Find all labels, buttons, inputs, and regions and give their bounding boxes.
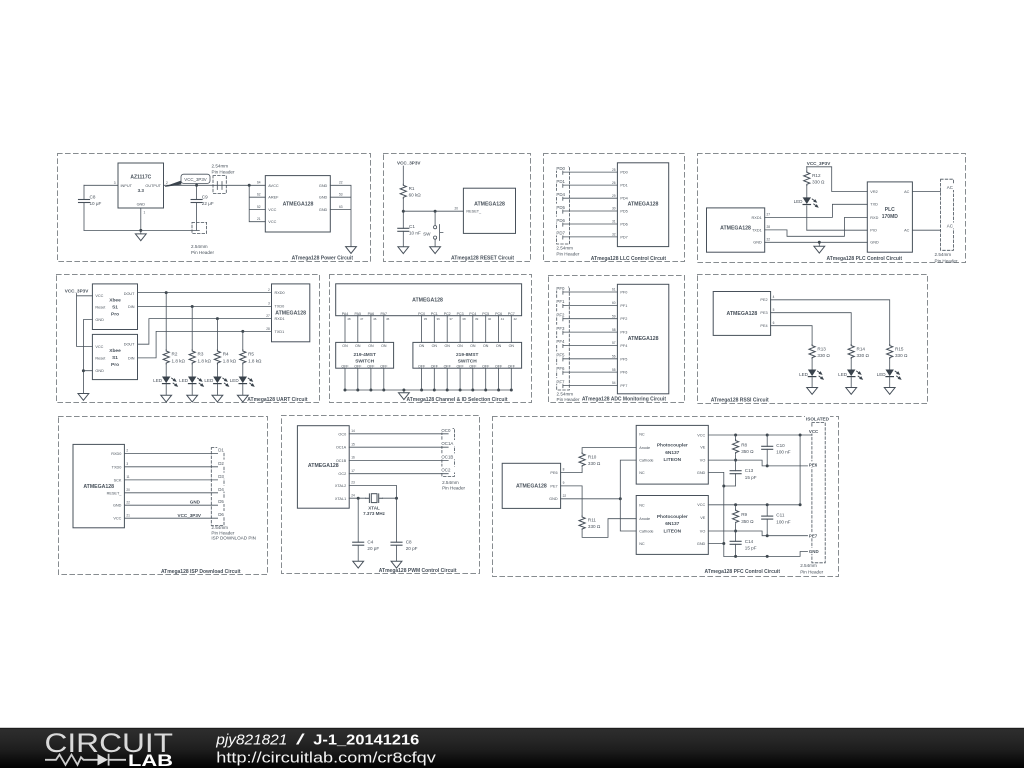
svg-text:DOUT: DOUT (124, 343, 135, 347)
svg-text:TXD1: TXD1 (275, 330, 285, 334)
svg-text:VCC: VCC (268, 208, 276, 212)
svg-text:3: 3 (126, 462, 128, 466)
svg-text:R12: R12 (812, 173, 821, 178)
svg-text:OC1A: OC1A (336, 446, 347, 450)
svg-text:PF0: PF0 (556, 286, 565, 291)
svg-text:OC0: OC0 (441, 428, 451, 433)
svg-text:1.8 kΩ: 1.8 kΩ (248, 358, 262, 363)
svg-text:15 pF: 15 pF (745, 545, 757, 550)
svg-text:Photocoupler: Photocoupler (657, 514, 688, 520)
svg-text:6N137: 6N137 (665, 450, 679, 456)
svg-text:Pro: Pro (111, 362, 119, 368)
svg-text:ISOLATED: ISOLATED (806, 417, 830, 422)
svg-text:PF3: PF3 (620, 331, 627, 335)
svg-text:TXD: TXD (870, 203, 878, 207)
svg-text:Cathode: Cathode (639, 529, 653, 533)
svg-text:LED: LED (799, 372, 809, 377)
svg-text:XTAL1: XTAL1 (335, 497, 346, 501)
svg-text:OFF: OFF (418, 364, 426, 368)
svg-text:ON: ON (470, 344, 476, 348)
svg-text:2.54mm: 2.54mm (212, 164, 229, 169)
svg-text:LED: LED (838, 372, 848, 377)
svg-text:GND: GND (95, 318, 104, 322)
svg-text:Xbee: Xbee (109, 348, 121, 354)
svg-text:64: 64 (257, 181, 261, 185)
svg-text:OFF: OFF (482, 364, 490, 368)
svg-text:R5: R5 (248, 352, 254, 357)
svg-text:RXD: RXD (870, 216, 878, 220)
svg-text:27: 27 (266, 314, 270, 318)
svg-text:Pin Header: Pin Header (556, 252, 579, 257)
svg-text:Pin Header: Pin Header (557, 397, 580, 402)
svg-text:PD1: PD1 (620, 184, 627, 188)
svg-text:11: 11 (126, 475, 130, 479)
svg-text:56: 56 (612, 355, 616, 359)
svg-text:PF5: PF5 (620, 357, 627, 361)
svg-text:R15: R15 (895, 346, 904, 351)
svg-text:R14: R14 (857, 346, 866, 351)
svg-text:ATmega128 ADC Monitoring Circu: ATmega128 ADC Monitoring Circuit (582, 397, 667, 403)
svg-text:VCC_3P3V: VCC_3P3V (65, 289, 89, 294)
svg-text:D2: D2 (218, 461, 224, 466)
svg-text:LED: LED (794, 199, 804, 204)
svg-text:ATMEGA128: ATMEGA128 (283, 202, 314, 208)
svg-text:OFF: OFF (341, 364, 349, 368)
svg-text:OFF: OFF (380, 364, 388, 368)
svg-text:RXD0: RXD0 (275, 291, 285, 295)
svg-text:36: 36 (437, 317, 441, 321)
svg-text:GND: GND (137, 203, 146, 207)
svg-text:20 pF: 20 pF (406, 546, 418, 551)
svg-text:D3: D3 (218, 474, 224, 479)
svg-text:41: 41 (501, 317, 505, 321)
svg-text:AC: AC (904, 190, 910, 194)
svg-text:21: 21 (257, 217, 261, 221)
svg-text:PA4: PA4 (342, 312, 349, 316)
svg-text:C10: C10 (776, 443, 785, 448)
svg-text:ON: ON (355, 344, 361, 348)
svg-text:VCC: VCC (113, 517, 121, 521)
svg-text:PD7: PD7 (556, 231, 565, 236)
svg-text:28: 28 (767, 225, 771, 229)
svg-text:PA5: PA5 (355, 312, 362, 316)
svg-text:PD5: PD5 (556, 205, 565, 210)
svg-text:GND: GND (319, 208, 328, 212)
svg-text:58: 58 (612, 328, 616, 332)
svg-text:15: 15 (351, 442, 355, 446)
svg-text:LED: LED (877, 372, 887, 377)
svg-text:OFF: OFF (367, 364, 375, 368)
svg-text:Pin Header: Pin Header (212, 169, 235, 174)
svg-text:20: 20 (126, 488, 130, 492)
svg-text:D5: D5 (218, 499, 224, 504)
svg-text:PD4: PD4 (620, 197, 627, 201)
svg-text:PD6: PD6 (620, 223, 627, 227)
svg-text:PE3: PE3 (760, 311, 767, 315)
svg-text:PD0: PD0 (556, 166, 565, 171)
svg-text:GND: GND (697, 471, 706, 475)
svg-text:8: 8 (563, 468, 565, 472)
svg-text:22: 22 (563, 494, 567, 498)
svg-text:Pro: Pro (111, 312, 119, 318)
svg-text:53: 53 (339, 193, 343, 197)
svg-text:OFF: OFF (431, 364, 439, 368)
svg-text:C11: C11 (776, 513, 785, 518)
svg-text:ATMEGA128: ATMEGA128 (727, 311, 758, 317)
svg-text:37: 37 (449, 317, 453, 321)
svg-text:VO: VO (700, 459, 706, 463)
svg-text:63: 63 (339, 205, 343, 209)
svg-text:VCC: VCC (95, 294, 103, 298)
svg-text:ATmega128 Channel & ID Selecti: ATmega128 Channel & ID Selection Circuit (406, 397, 507, 403)
svg-text:OFF: OFF (354, 364, 362, 368)
svg-text:59: 59 (612, 314, 616, 318)
svg-text:46: 46 (373, 317, 377, 321)
svg-text:Pin Header: Pin Header (935, 258, 958, 263)
svg-text:52: 52 (257, 205, 261, 209)
svg-text:OC0: OC0 (338, 432, 346, 436)
svg-text:OC2: OC2 (338, 472, 346, 476)
svg-text:ATmega128 UART Circuit: ATmega128 UART Circuit (247, 397, 308, 403)
svg-text:VR2: VR2 (870, 190, 877, 194)
svg-text:ATMEGA128: ATMEGA128 (628, 336, 659, 342)
svg-text:55: 55 (612, 368, 616, 372)
svg-text:9: 9 (563, 481, 565, 485)
svg-text:3.3: 3.3 (138, 188, 145, 193)
svg-text:330 Ω: 330 Ω (895, 353, 908, 358)
svg-text:GND: GND (95, 369, 104, 373)
svg-text:ON: ON (432, 344, 438, 348)
svg-text:PIO: PIO (870, 229, 877, 233)
svg-text:Reset: Reset (95, 356, 106, 360)
svg-text:TXD0: TXD0 (112, 465, 122, 469)
svg-text:ATmega128 PLC Control Circuit: ATmega128 PLC Control Circuit (827, 256, 903, 262)
svg-text:2.54mm: 2.54mm (211, 525, 228, 530)
svg-text:Photocoupler: Photocoupler (657, 443, 688, 449)
svg-text:20 pF: 20 pF (367, 546, 379, 551)
svg-text:62: 62 (257, 193, 261, 197)
svg-text:100 nF: 100 nF (776, 519, 790, 524)
svg-text:PF4: PF4 (556, 339, 565, 344)
svg-text:PD1: PD1 (556, 179, 565, 184)
svg-text:6N137: 6N137 (665, 521, 679, 527)
svg-text:ON: ON (419, 344, 425, 348)
svg-text:SCK: SCK (114, 478, 122, 482)
svg-text:NC: NC (639, 432, 645, 436)
svg-text:AREF: AREF (268, 196, 279, 200)
svg-text:RXD1: RXD1 (275, 317, 285, 321)
svg-text:ON: ON (496, 344, 502, 348)
svg-text:ATMEGA128: ATMEGA128 (308, 463, 339, 469)
svg-text:57: 57 (612, 341, 616, 345)
svg-text:OFF: OFF (469, 364, 477, 368)
svg-text:ON: ON (368, 344, 374, 348)
svg-text:VCC_3P3V: VCC_3P3V (807, 161, 831, 166)
svg-text:ATmega128 RSSI Circuit: ATmega128 RSSI Circuit (711, 397, 769, 403)
svg-text:ON: ON (509, 344, 515, 348)
svg-text:60 kΩ: 60 kΩ (409, 193, 422, 198)
svg-text:38: 38 (462, 317, 466, 321)
svg-text:C8: C8 (90, 195, 96, 200)
svg-text:C1: C1 (409, 224, 415, 229)
svg-text:26: 26 (612, 181, 616, 185)
svg-text:3: 3 (114, 181, 116, 185)
svg-text:170MD: 170MD (882, 214, 899, 220)
svg-text:PC6: PC6 (495, 312, 502, 316)
svg-text:LED: LED (204, 378, 214, 383)
svg-text:1.8 kΩ: 1.8 kΩ (172, 358, 186, 363)
svg-text:PC7: PC7 (508, 312, 515, 316)
svg-text:Anode: Anode (639, 446, 650, 450)
svg-text:AC: AC (947, 185, 953, 190)
svg-text:ON: ON (445, 344, 451, 348)
svg-text:ATMEGA128: ATMEGA128 (275, 310, 306, 316)
svg-text:ATMEGA128: ATMEGA128 (720, 226, 751, 232)
svg-text:NC: NC (639, 542, 645, 546)
svg-text:D6: D6 (218, 512, 224, 517)
svg-text:INPUT: INPUT (121, 184, 133, 188)
svg-text:Cathode: Cathode (639, 459, 653, 463)
svg-text:GND: GND (697, 542, 706, 546)
svg-text:47: 47 (360, 317, 364, 321)
svg-text:2.54mm: 2.54mm (935, 252, 952, 257)
svg-text:ATmega128 PFC Control Circuit: ATmega128 PFC Control Circuit (705, 569, 781, 575)
svg-text:24: 24 (351, 493, 355, 497)
svg-text:29: 29 (612, 194, 616, 198)
svg-text:OC2: OC2 (441, 468, 451, 473)
svg-text:330 Ω: 330 Ω (588, 461, 601, 466)
svg-text:ATMEGA128: ATMEGA128 (628, 201, 659, 207)
svg-text:R13: R13 (817, 346, 826, 351)
svg-text:PF5: PF5 (556, 353, 565, 358)
svg-text:Pin Header: Pin Header (211, 530, 234, 535)
svg-text:GND: GND (113, 504, 122, 508)
svg-text:R10: R10 (588, 454, 597, 459)
svg-text:PF4: PF4 (620, 344, 627, 348)
svg-text:330 Ω: 330 Ω (812, 180, 825, 185)
svg-text:1: 1 (144, 211, 146, 215)
svg-text:PE7: PE7 (809, 534, 818, 539)
svg-text:OUTPUT: OUTPUT (145, 184, 161, 188)
svg-text:GND: GND (190, 500, 201, 505)
svg-text:350 Ω: 350 Ω (741, 449, 754, 454)
svg-text:1.8 kΩ: 1.8 kΩ (223, 358, 237, 363)
svg-text:PF7: PF7 (556, 379, 565, 384)
svg-text:22: 22 (339, 181, 343, 185)
svg-text:PF6: PF6 (556, 366, 565, 371)
svg-text:R3: R3 (198, 352, 204, 357)
svg-text:RXD0: RXD0 (111, 452, 121, 456)
svg-text:C9: C9 (202, 195, 208, 200)
svg-text:http://circuitlab.com/cr8cfqv: http://circuitlab.com/cr8cfqv (216, 749, 436, 766)
svg-text:61: 61 (612, 288, 616, 292)
svg-text:PA6: PA6 (368, 312, 375, 316)
svg-text:AVCC: AVCC (268, 184, 279, 188)
svg-text:ON: ON (457, 344, 463, 348)
svg-text:17: 17 (351, 469, 355, 473)
svg-text:2: 2 (126, 449, 128, 453)
svg-text:VE: VE (700, 516, 706, 520)
svg-text:S1: S1 (112, 305, 118, 311)
svg-text:10 μF: 10 μF (90, 201, 102, 206)
svg-text:25: 25 (612, 168, 616, 172)
svg-text:10 nF: 10 nF (409, 230, 421, 235)
svg-text:R1: R1 (409, 186, 415, 191)
svg-text:5: 5 (773, 308, 775, 312)
svg-text:PD7: PD7 (620, 235, 627, 239)
svg-text:330 Ω: 330 Ω (817, 353, 830, 358)
svg-text:S1: S1 (112, 355, 118, 361)
svg-text:VCC_3P3V: VCC_3P3V (178, 513, 202, 518)
svg-text:2: 2 (268, 288, 270, 292)
svg-text:ISP DOWNLOAD PIN: ISP DOWNLOAD PIN (211, 536, 256, 541)
svg-text:350 Ω: 350 Ω (741, 519, 754, 524)
svg-text:PC0: PC0 (418, 312, 425, 316)
svg-text:GND: GND (549, 497, 558, 501)
svg-text:42: 42 (514, 317, 518, 321)
svg-text:PC1: PC1 (431, 312, 438, 316)
svg-text:PE7: PE7 (550, 484, 557, 488)
svg-text:PE4: PE4 (760, 324, 767, 328)
svg-text:31: 31 (612, 220, 616, 224)
svg-text:VE: VE (700, 446, 706, 450)
svg-text:AC: AC (947, 224, 953, 229)
svg-text:PE6: PE6 (550, 471, 557, 475)
svg-text:2: 2 (166, 181, 168, 185)
svg-text:R11: R11 (588, 518, 597, 523)
svg-text:XTAL: XTAL (368, 506, 380, 511)
svg-text:OFF: OFF (444, 364, 452, 368)
svg-text:R8: R8 (741, 442, 747, 447)
svg-text:ATmega128 Power Circuit: ATmega128 Power Circuit (292, 256, 354, 262)
svg-text:PA7: PA7 (381, 312, 388, 316)
svg-text:PC3: PC3 (457, 312, 464, 316)
svg-text:3: 3 (268, 302, 270, 306)
svg-text:VCC_3P3V: VCC_3P3V (184, 177, 207, 182)
svg-text:60: 60 (612, 301, 616, 305)
svg-text:2.54mm: 2.54mm (556, 245, 573, 250)
svg-text:22: 22 (126, 500, 130, 504)
svg-text:100 nF: 100 nF (776, 450, 790, 455)
svg-text:GND: GND (319, 196, 328, 200)
svg-text:C4: C4 (367, 540, 373, 545)
svg-text:PC2: PC2 (444, 312, 451, 316)
svg-text:21: 21 (126, 513, 130, 517)
svg-text:GND: GND (870, 241, 879, 245)
svg-text:OFF: OFF (457, 364, 465, 368)
svg-text:ATmega128 LLC Control Circuit: ATmega128 LLC Control Circuit (591, 256, 667, 262)
svg-text:32: 32 (612, 233, 616, 237)
svg-text:R4: R4 (223, 352, 229, 357)
svg-text:D4: D4 (218, 487, 224, 492)
svg-text:330 Ω: 330 Ω (857, 353, 870, 358)
svg-text:LAB: LAB (128, 751, 173, 768)
svg-text:27: 27 (767, 213, 771, 217)
svg-text:PF1: PF1 (556, 299, 565, 304)
svg-text:2.54mm: 2.54mm (442, 480, 459, 485)
svg-text:35: 35 (424, 317, 428, 321)
svg-text:22 μF: 22 μF (202, 201, 214, 206)
svg-text:VCC_3P3V: VCC_3P3V (397, 161, 421, 166)
svg-text:DIN: DIN (128, 305, 135, 309)
svg-text:ATmega128 RESET Circuit: ATmega128 RESET Circuit (451, 256, 514, 262)
svg-text:39: 39 (475, 317, 479, 321)
svg-text:22: 22 (767, 238, 771, 242)
svg-text:LITEON: LITEON (664, 529, 682, 535)
svg-text:PC4: PC4 (469, 312, 476, 316)
svg-text:Xbee: Xbee (109, 298, 121, 304)
svg-text:PF1: PF1 (620, 304, 627, 308)
svg-text:XTAL2: XTAL2 (335, 484, 346, 488)
svg-text:D1: D1 (218, 448, 224, 453)
svg-text:VCC: VCC (95, 345, 103, 349)
svg-text:16: 16 (351, 456, 355, 460)
svg-text:45: 45 (386, 317, 390, 321)
svg-text:2.54mm: 2.54mm (191, 244, 208, 249)
svg-text:ATmega128 PWM Control Circuit: ATmega128 PWM Control Circuit (379, 568, 457, 574)
svg-text:PF2: PF2 (620, 317, 627, 321)
svg-text:R2: R2 (172, 352, 178, 357)
svg-text:GND: GND (753, 241, 762, 245)
svg-text:R9: R9 (741, 512, 747, 517)
svg-text:pjy821821 / J-1_20141216: pjy821821 / J-1_20141216 (215, 732, 419, 749)
svg-text:6: 6 (773, 321, 775, 325)
svg-text:PF6: PF6 (620, 371, 627, 375)
svg-text:48: 48 (347, 317, 351, 321)
svg-text:DIN: DIN (128, 356, 135, 360)
svg-text:OC1B: OC1B (441, 455, 453, 460)
svg-text:54: 54 (612, 381, 616, 385)
svg-text:PD6: PD6 (556, 218, 565, 223)
svg-text:PD4: PD4 (556, 192, 565, 197)
svg-text:C14: C14 (745, 539, 754, 544)
svg-text:PC5: PC5 (482, 312, 489, 316)
svg-text:C8: C8 (406, 540, 412, 545)
svg-text:VCC: VCC (809, 429, 819, 434)
svg-text:30: 30 (612, 207, 616, 211)
svg-text:15 pF: 15 pF (745, 475, 757, 480)
svg-text:PE6: PE6 (809, 463, 818, 468)
svg-text:NC: NC (639, 471, 645, 475)
svg-text:RESET_: RESET_ (466, 210, 482, 214)
svg-text:Pin Header: Pin Header (191, 250, 214, 255)
svg-text:28: 28 (266, 327, 270, 331)
svg-text:PF2: PF2 (556, 313, 565, 318)
svg-text:1.8 kΩ: 1.8 kΩ (198, 358, 212, 363)
svg-text:14: 14 (351, 429, 355, 433)
svg-text:VO: VO (700, 529, 706, 533)
svg-text:PF0: PF0 (620, 291, 627, 295)
svg-text:40: 40 (488, 317, 492, 321)
svg-text:ATMEGA128: ATMEGA128 (412, 298, 443, 304)
svg-text:DOUT: DOUT (124, 292, 135, 296)
svg-text:LITEON: LITEON (664, 457, 682, 463)
svg-text:PD5: PD5 (620, 210, 627, 214)
svg-text:NC: NC (639, 504, 645, 508)
svg-text:ON: ON (342, 344, 348, 348)
svg-text:OC1A: OC1A (441, 441, 453, 446)
svg-text:VCC: VCC (697, 433, 705, 437)
svg-text:330 Ω: 330 Ω (588, 524, 601, 529)
svg-text:GND: GND (319, 184, 328, 188)
svg-text:PE2: PE2 (760, 298, 767, 302)
svg-text:PF3: PF3 (556, 326, 565, 331)
svg-text:Reset: Reset (95, 306, 106, 310)
svg-text:AZ1117C: AZ1117C (130, 175, 151, 181)
svg-text:Pin Header: Pin Header (800, 569, 823, 574)
svg-text:2.54mm: 2.54mm (557, 391, 574, 396)
svg-text:7.373 MHz: 7.373 MHz (363, 511, 386, 516)
